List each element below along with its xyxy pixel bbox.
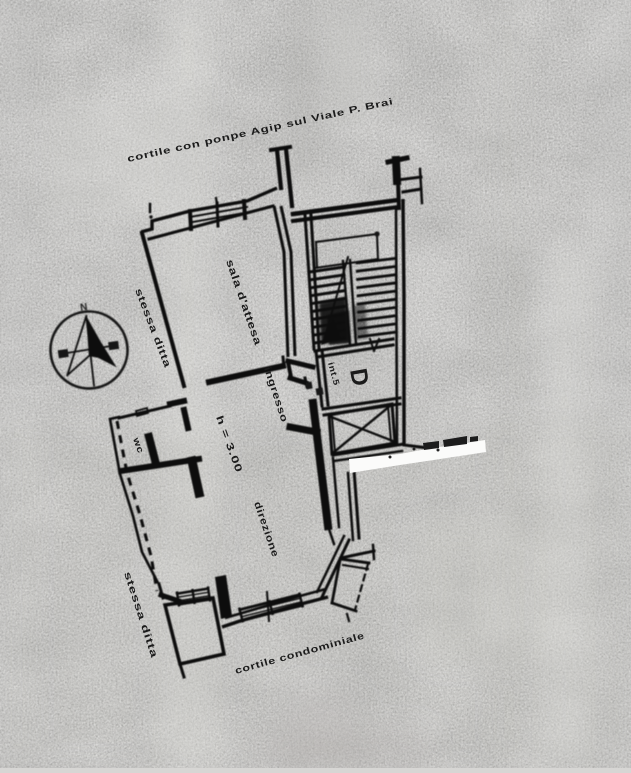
svg-text:N: N — [79, 302, 88, 314]
